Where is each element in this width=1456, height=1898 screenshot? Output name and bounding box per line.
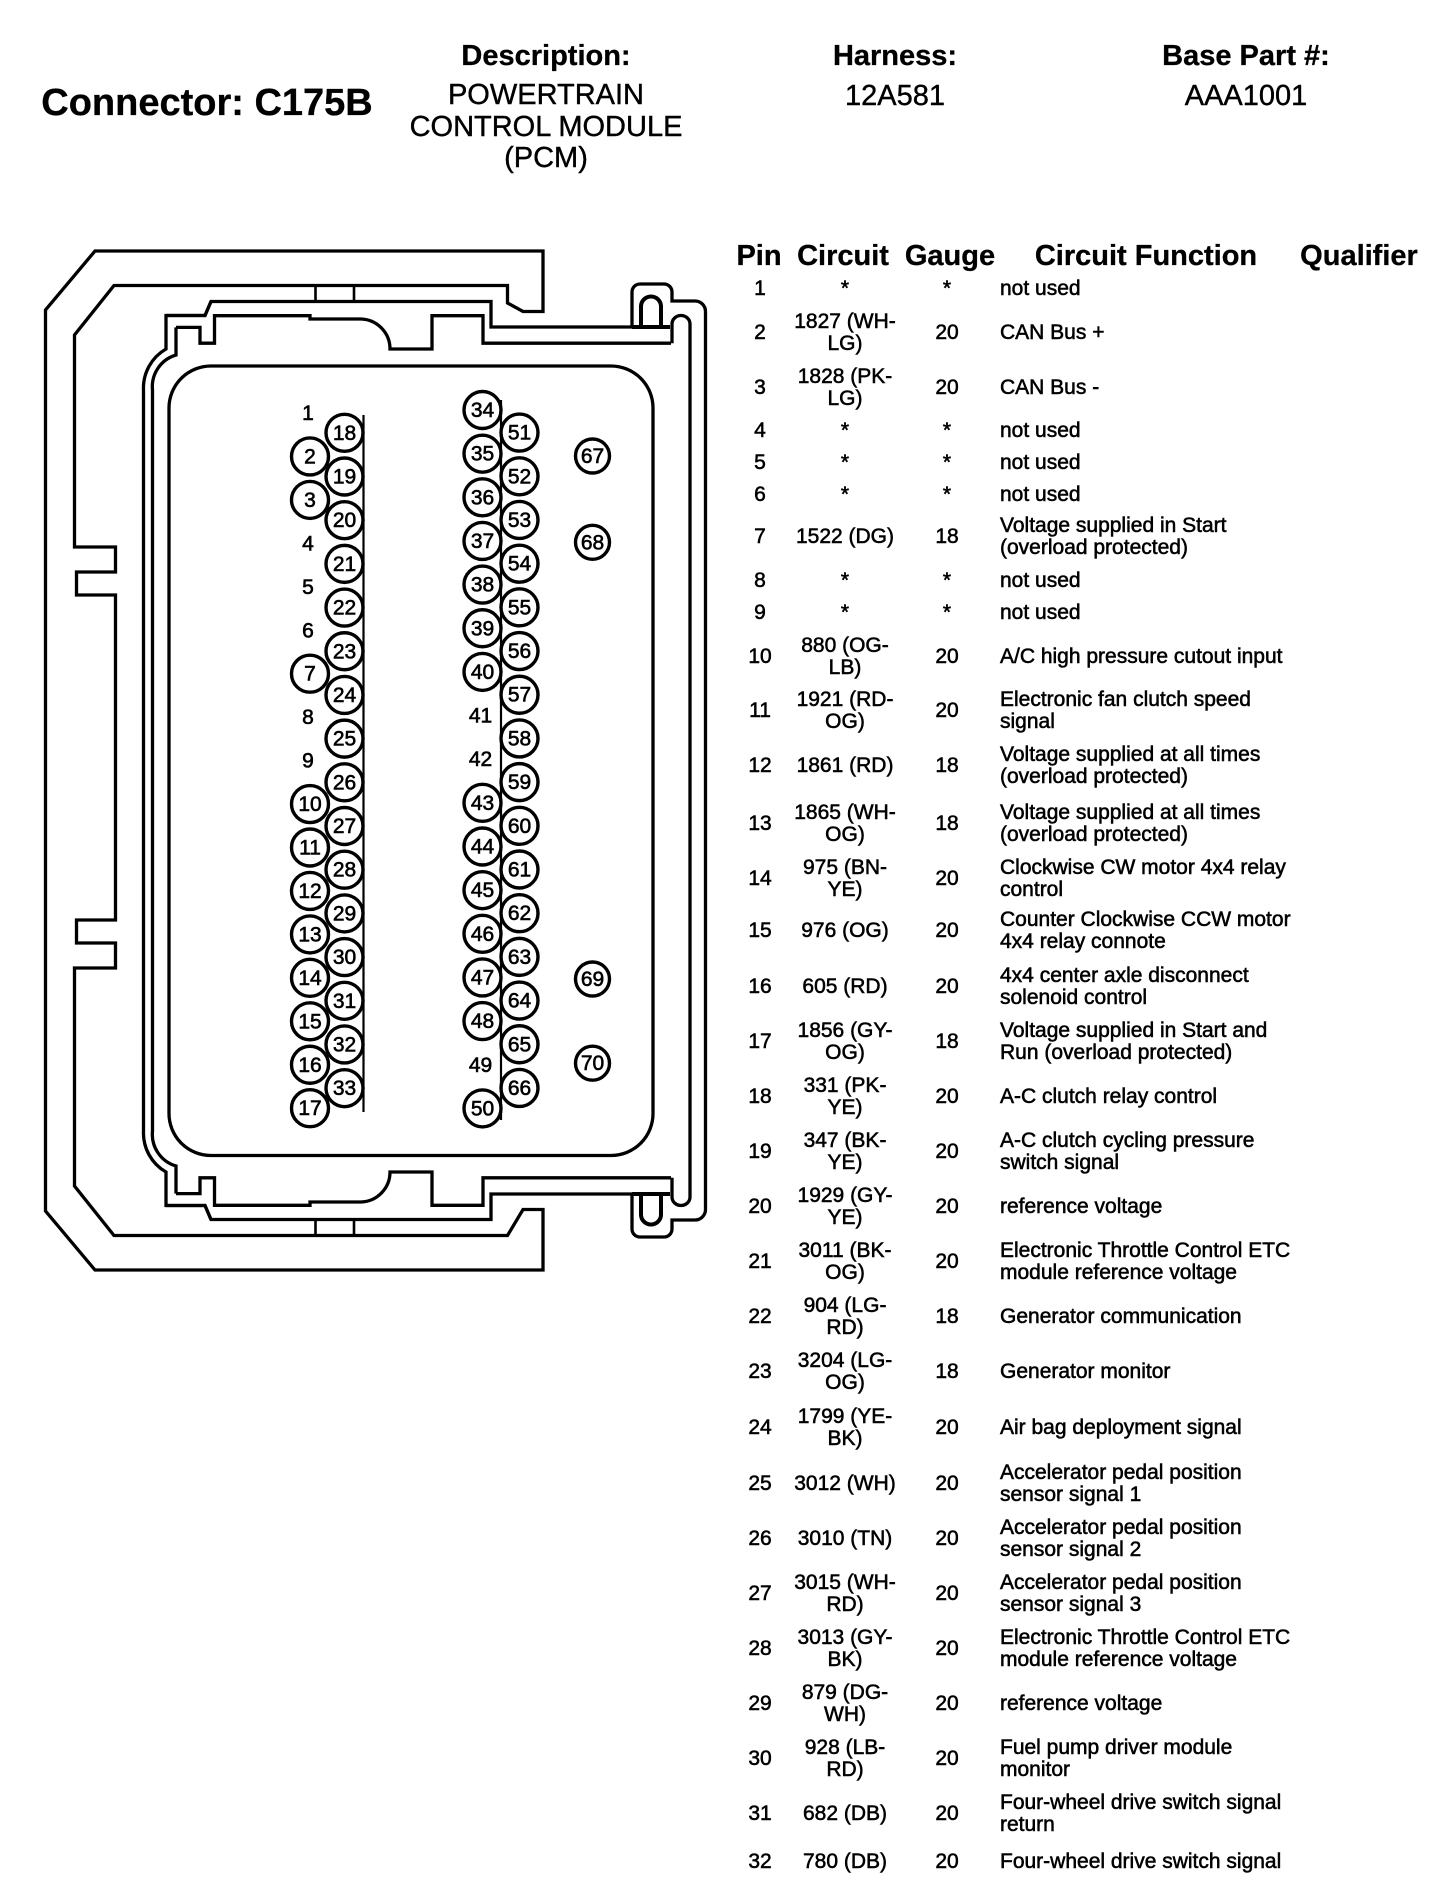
svg-text:21: 21 xyxy=(333,553,356,576)
svg-text:54: 54 xyxy=(508,553,532,576)
svg-text:49: 49 xyxy=(469,1054,492,1077)
svg-text:8: 8 xyxy=(302,706,314,729)
svg-text:26: 26 xyxy=(333,771,356,794)
svg-text:22: 22 xyxy=(333,597,356,620)
svg-text:27: 27 xyxy=(333,815,356,838)
svg-text:13: 13 xyxy=(298,923,321,946)
svg-text:44: 44 xyxy=(471,836,495,859)
svg-text:6: 6 xyxy=(302,619,314,642)
svg-text:1: 1 xyxy=(302,402,314,425)
svg-text:10: 10 xyxy=(298,793,321,816)
svg-text:52: 52 xyxy=(508,465,531,488)
svg-text:61: 61 xyxy=(508,859,531,882)
svg-text:20: 20 xyxy=(333,509,356,532)
svg-text:48: 48 xyxy=(471,1010,494,1033)
svg-text:47: 47 xyxy=(471,966,494,989)
svg-text:2: 2 xyxy=(304,445,316,468)
svg-text:43: 43 xyxy=(471,792,494,815)
svg-text:23: 23 xyxy=(333,640,356,663)
svg-text:65: 65 xyxy=(508,1033,531,1056)
svg-text:62: 62 xyxy=(508,902,531,925)
svg-text:51: 51 xyxy=(508,422,531,445)
svg-text:68: 68 xyxy=(581,531,604,554)
svg-text:38: 38 xyxy=(471,574,494,597)
svg-text:69: 69 xyxy=(581,968,604,991)
svg-text:57: 57 xyxy=(508,684,531,707)
svg-text:3: 3 xyxy=(304,489,316,512)
svg-text:31: 31 xyxy=(333,990,356,1013)
svg-text:15: 15 xyxy=(298,1010,321,1033)
svg-text:40: 40 xyxy=(471,661,494,684)
svg-text:17: 17 xyxy=(298,1097,321,1120)
svg-text:30: 30 xyxy=(333,946,356,969)
svg-text:37: 37 xyxy=(471,530,494,553)
svg-text:9: 9 xyxy=(302,750,314,773)
svg-text:34: 34 xyxy=(471,399,495,422)
svg-text:41: 41 xyxy=(469,705,492,728)
svg-text:16: 16 xyxy=(298,1054,321,1077)
svg-text:35: 35 xyxy=(471,443,494,466)
svg-text:36: 36 xyxy=(471,486,494,509)
svg-text:4: 4 xyxy=(302,532,314,555)
svg-text:7: 7 xyxy=(304,663,316,686)
svg-text:42: 42 xyxy=(469,748,492,771)
svg-text:59: 59 xyxy=(508,771,531,794)
svg-text:29: 29 xyxy=(333,902,356,925)
svg-text:66: 66 xyxy=(508,1077,531,1100)
svg-text:14: 14 xyxy=(298,967,322,990)
svg-text:24: 24 xyxy=(333,684,357,707)
svg-text:63: 63 xyxy=(508,946,531,969)
svg-text:60: 60 xyxy=(508,815,531,838)
svg-text:50: 50 xyxy=(471,1097,494,1120)
svg-text:32: 32 xyxy=(333,1033,356,1056)
svg-text:46: 46 xyxy=(471,923,494,946)
svg-text:25: 25 xyxy=(333,728,356,751)
svg-text:58: 58 xyxy=(508,727,531,750)
svg-text:64: 64 xyxy=(508,990,532,1013)
svg-text:55: 55 xyxy=(508,596,531,619)
svg-text:18: 18 xyxy=(333,422,356,445)
svg-text:19: 19 xyxy=(333,465,356,488)
svg-text:12: 12 xyxy=(298,880,321,903)
svg-text:53: 53 xyxy=(508,509,531,532)
svg-text:11: 11 xyxy=(299,837,321,860)
svg-text:28: 28 xyxy=(333,859,356,882)
svg-text:67: 67 xyxy=(581,445,604,468)
svg-text:39: 39 xyxy=(471,617,494,640)
svg-text:45: 45 xyxy=(471,879,494,902)
svg-text:33: 33 xyxy=(333,1077,356,1100)
svg-text:56: 56 xyxy=(508,640,531,663)
svg-text:5: 5 xyxy=(302,576,314,599)
svg-text:70: 70 xyxy=(581,1052,604,1075)
